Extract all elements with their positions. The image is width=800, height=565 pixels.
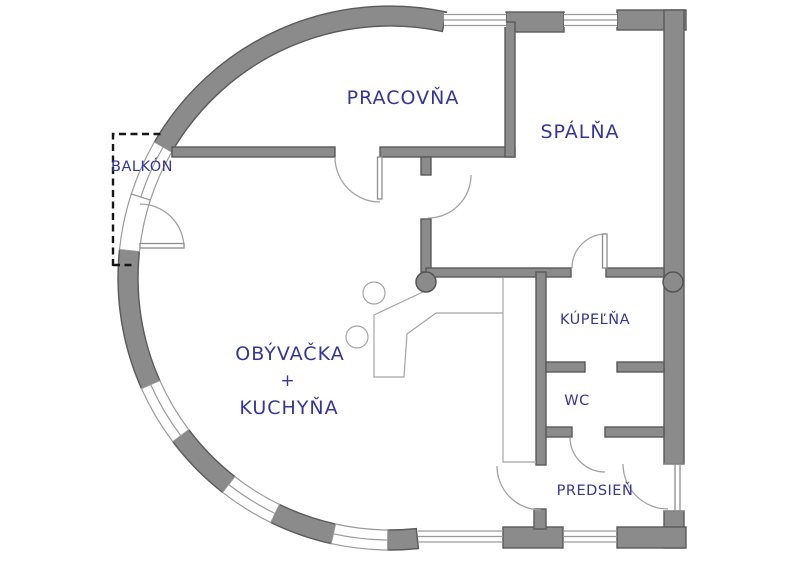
curved-wall-pier-2 <box>271 505 336 544</box>
kitchen-counter <box>346 278 536 462</box>
top-window-east <box>564 13 617 27</box>
wc-hallway-divider-left <box>546 427 572 437</box>
bottom-window-east <box>563 531 617 542</box>
hall-wall-stub <box>534 509 546 529</box>
living-hallway-door-arc <box>497 466 541 510</box>
bathroom-west-wall <box>536 272 546 465</box>
bathroom-wc-divider-left <box>546 362 585 372</box>
room-label-kitchen: KUCHYŇA <box>239 397 338 419</box>
room-label-balcony: BALKÓN <box>111 159 173 175</box>
bedroom-south-wall-right <box>606 268 664 277</box>
bedroom-door-leaf <box>603 234 608 268</box>
study-door-leaf <box>378 157 383 199</box>
spine-door-arc <box>428 175 471 218</box>
room-label-hallway: PREDSIEŇ <box>557 483 634 499</box>
kitchen-fixture-circle-1 <box>363 282 385 304</box>
center-column <box>416 272 436 292</box>
bathroom-wc-divider-right <box>617 362 664 372</box>
kitchen-counter-outline <box>374 291 503 377</box>
floor-plan: BALKÓN PRACOVŇA SPÁLŇA OBÝVAČKA + KUCHYŇ… <box>0 0 800 565</box>
study-south-wall-right <box>380 147 515 157</box>
floor-plan-drawing <box>0 0 800 565</box>
top-window-west <box>444 13 506 27</box>
curved-wall-bottom-segment <box>388 529 419 550</box>
doors <box>140 157 684 511</box>
right-wall-upper <box>664 10 684 464</box>
curved-window-4 <box>331 524 388 550</box>
study-south-wall-left <box>172 147 335 157</box>
bottom-window-west <box>418 531 503 542</box>
spine-wall-jamb <box>421 157 431 175</box>
kitchen-fixture-circle-2 <box>346 326 368 348</box>
room-label-living-room: OBÝVAČKA <box>235 343 344 365</box>
curved-window-2 <box>142 381 189 442</box>
room-label-wc: WC <box>564 393 589 409</box>
spine-wall-lower <box>421 219 431 272</box>
curved-wall-top-segment <box>154 6 446 152</box>
wc-hallway-divider-right <box>605 427 664 437</box>
study-bedroom-divider <box>505 22 515 157</box>
study-door-arc <box>335 157 380 202</box>
room-label-bedroom: SPÁLŇA <box>540 121 619 143</box>
hall-closet-outline <box>503 278 536 462</box>
room-label-study: PRACOVŇA <box>347 87 460 109</box>
bottom-center-wall <box>503 527 563 548</box>
balcony-door-leaf <box>140 244 184 249</box>
wc-door-arc <box>570 437 605 472</box>
curved-wall-pier-1 <box>173 430 235 493</box>
room-label-plus: + <box>280 371 295 391</box>
entrance-door-leaf <box>664 464 684 511</box>
bedroom-door-arc <box>572 234 606 268</box>
room-label-bathroom: KÚPEĽŇA <box>560 312 630 328</box>
curved-wall-left-segment <box>118 250 160 389</box>
bedroom-south-wall-left <box>426 268 571 277</box>
right-wall-column <box>663 272 683 292</box>
bottom-right-corner-wall <box>617 527 686 548</box>
